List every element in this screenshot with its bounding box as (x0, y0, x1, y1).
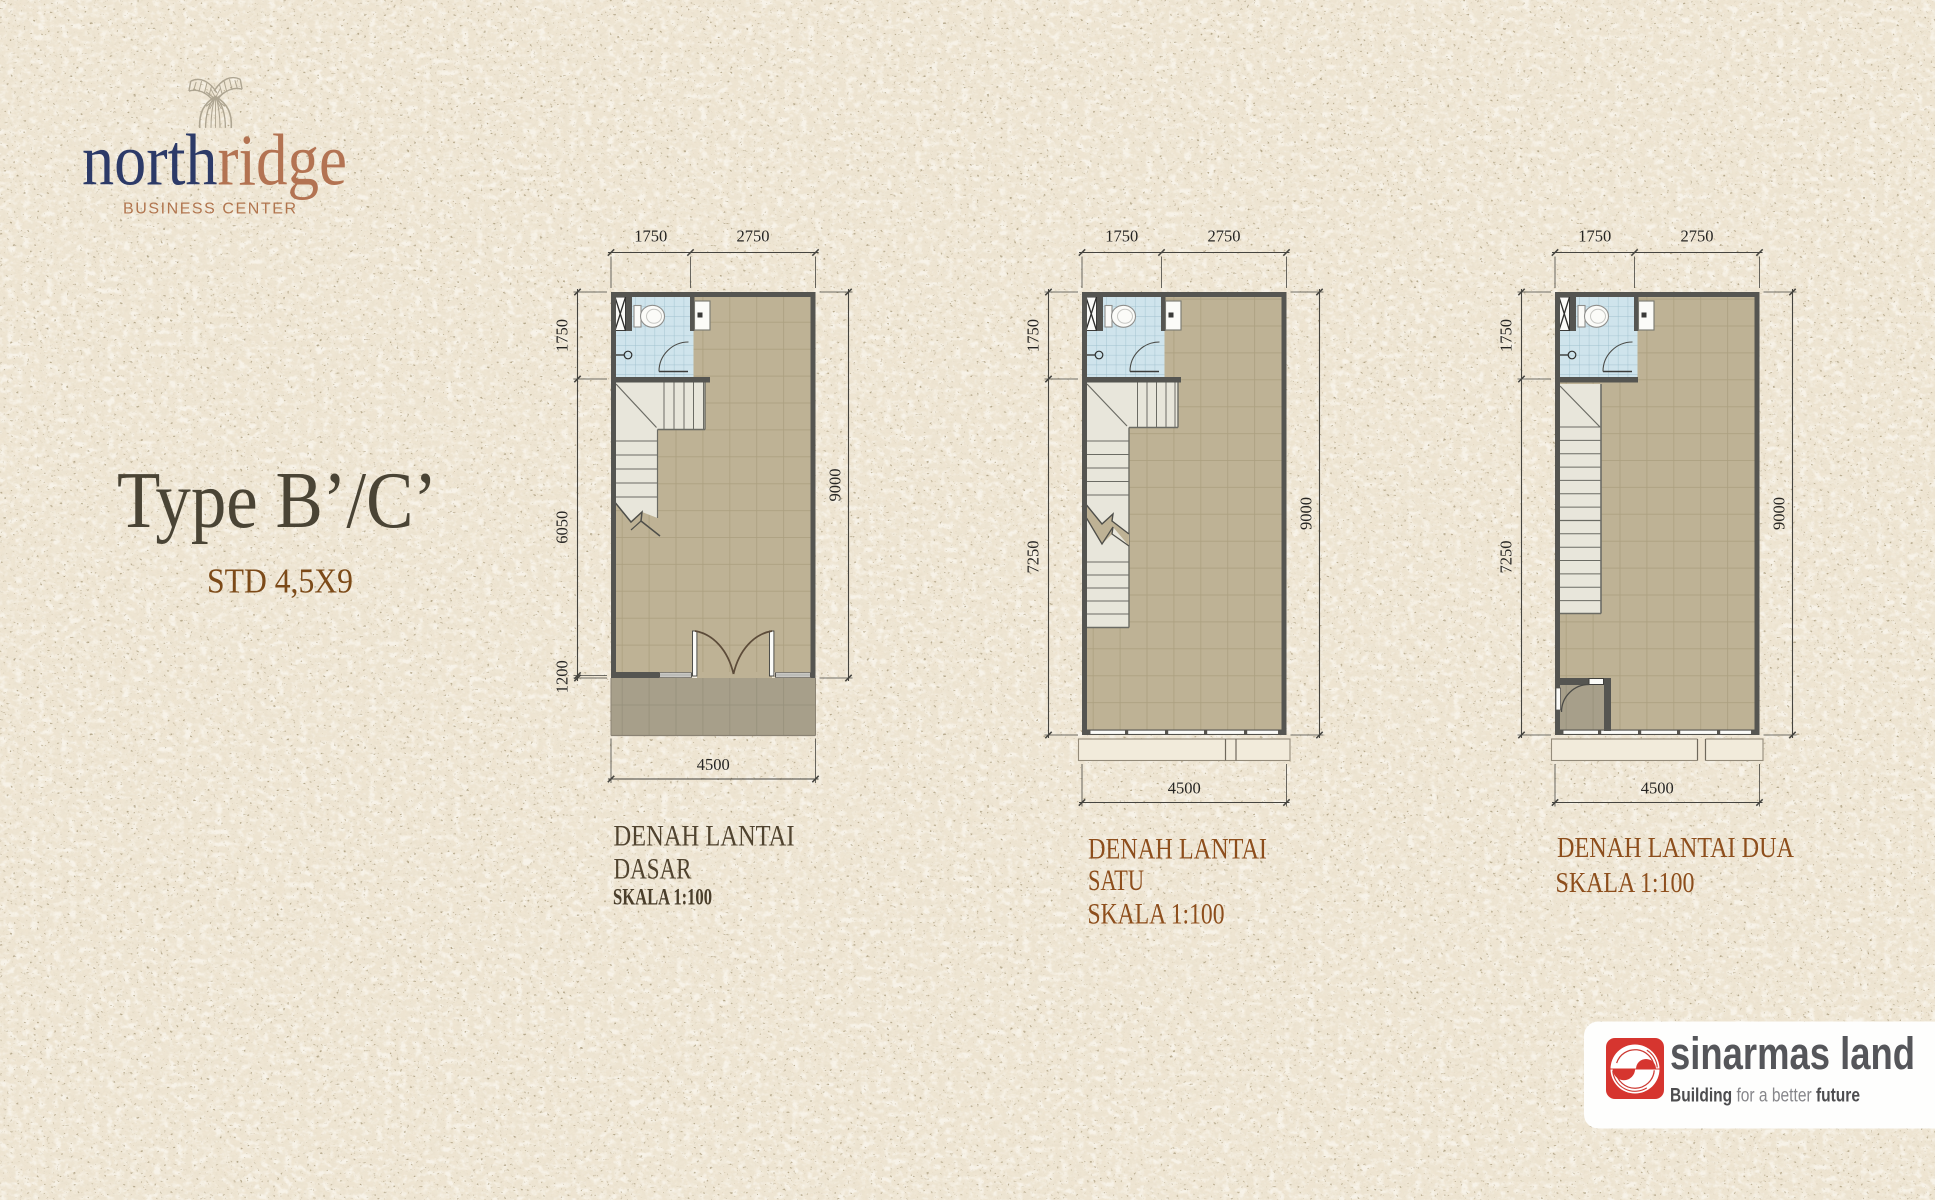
svg-text:SKALA 1:100: SKALA 1:100 (1088, 898, 1225, 931)
svg-text:7250: 7250 (1024, 541, 1043, 574)
svg-text:DENAH LANTAI: DENAH LANTAI (1088, 833, 1267, 866)
svg-text:4500: 4500 (697, 755, 730, 774)
svg-text:7250: 7250 (1497, 541, 1516, 574)
svg-text:4500: 4500 (1641, 779, 1674, 798)
svg-text:ridge: ridge (218, 120, 348, 201)
svg-text:DENAH LANTAI DUA: DENAH LANTAI DUA (1557, 833, 1795, 864)
svg-text:2750: 2750 (737, 227, 770, 246)
svg-text:SKALA 1:100: SKALA 1:100 (1556, 868, 1695, 899)
svg-text:Building for a better future: Building for a better future (1670, 1085, 1860, 1107)
svg-text:1750: 1750 (1024, 319, 1043, 352)
svg-text:1200: 1200 (553, 660, 572, 693)
svg-text:6050: 6050 (553, 511, 572, 544)
svg-text:STD 4,5X9: STD 4,5X9 (207, 562, 353, 601)
svg-text:9000: 9000 (1770, 497, 1789, 530)
svg-text:1750: 1750 (1105, 227, 1138, 246)
svg-text:SKALA 1:100: SKALA 1:100 (613, 885, 712, 910)
svg-text:1750: 1750 (1497, 319, 1516, 352)
svg-text:2750: 2750 (1681, 227, 1714, 246)
svg-text:1750: 1750 (553, 319, 572, 352)
svg-text:2750: 2750 (1208, 227, 1241, 246)
svg-text:BUSINESS CENTER: BUSINESS CENTER (123, 201, 296, 218)
svg-text:Type B’/C’: Type B’/C’ (117, 455, 437, 545)
svg-text:DENAH LANTAI: DENAH LANTAI (614, 820, 795, 853)
svg-text:north: north (82, 120, 218, 201)
svg-text:9000: 9000 (1297, 497, 1316, 530)
svg-text:SATU: SATU (1088, 864, 1144, 897)
svg-text:4500: 4500 (1168, 779, 1201, 798)
svg-text:1750: 1750 (634, 227, 667, 246)
svg-text:9000: 9000 (826, 469, 845, 502)
svg-text:sinarmas land: sinarmas land (1670, 1028, 1915, 1079)
svg-text:DASAR: DASAR (614, 853, 692, 886)
svg-text:1750: 1750 (1578, 227, 1611, 246)
